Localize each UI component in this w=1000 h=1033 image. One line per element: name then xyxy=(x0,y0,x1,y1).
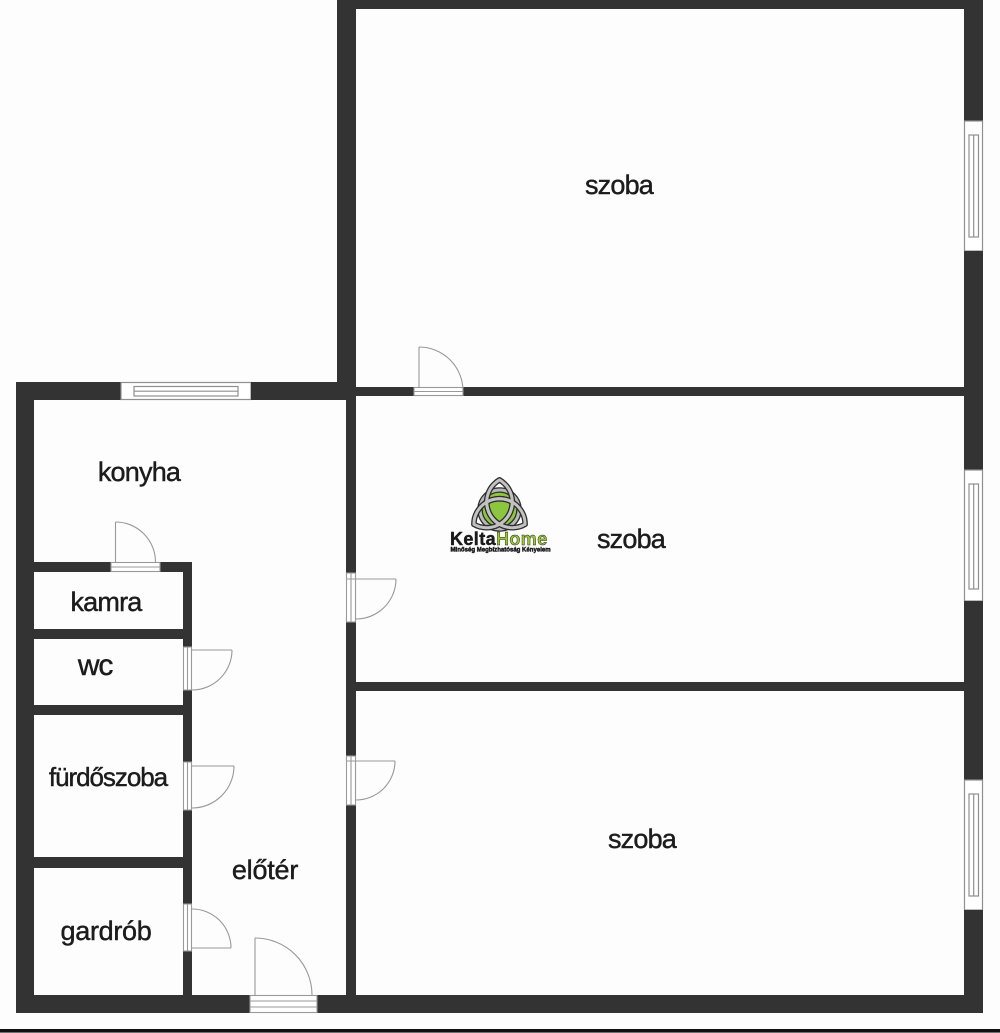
svg-text:Minőség Megbízhatóság Kényelem: Minőség Megbízhatóság Kényelem xyxy=(451,548,551,554)
svg-text:gardrób: gardrób xyxy=(61,916,152,946)
svg-text:wc: wc xyxy=(77,649,113,682)
svg-text:konyha: konyha xyxy=(98,457,182,487)
svg-text:kamra: kamra xyxy=(70,587,143,617)
svg-text:fürdőszoba: fürdőszoba xyxy=(49,762,169,792)
svg-text:szoba: szoba xyxy=(585,170,655,200)
svg-text:szoba: szoba xyxy=(608,824,678,854)
svg-text:KeltaHome: KeltaHome xyxy=(450,529,548,549)
svg-text:szoba: szoba xyxy=(597,524,667,554)
svg-text:előtér: előtér xyxy=(232,855,299,885)
